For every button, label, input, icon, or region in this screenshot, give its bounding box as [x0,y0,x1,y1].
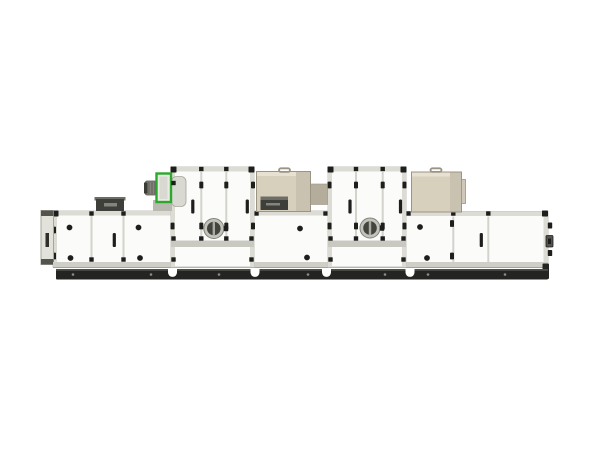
plinth-bolt [218,273,221,276]
door-knob [297,226,303,232]
plinth-bolt [384,273,387,276]
plinth-bolt [72,273,75,276]
door-handle [246,200,249,214]
slot-flange [261,197,289,201]
plinth-bolt [504,273,507,276]
hinge-tab [199,223,203,230]
porthole-latch [224,226,229,232]
air-handling-unit-illustration [0,0,600,450]
corner-cap [542,211,548,217]
sight-glass-porthole [204,219,224,239]
door-knob [424,255,430,261]
flange-slot [46,233,50,247]
seam-cap [401,236,405,240]
center-latch [546,236,553,248]
corner-cap [323,211,327,215]
seam-cap [381,167,385,171]
rotor-access-tower-right [328,167,407,268]
door-knob [304,255,310,261]
seam-cap [249,236,253,240]
door-knob [417,224,423,230]
cassette-side-shade [450,173,461,212]
hinge-tab [354,182,358,189]
seam-cap [89,257,93,261]
seam-cap [328,257,332,261]
door-handle [480,233,483,247]
edge-latch [548,250,552,256]
cassette-vent-slot [261,197,289,211]
hinge-tab [450,253,454,260]
hinge-tab [224,182,228,189]
hinge-tab [251,182,255,189]
seam-cap [249,257,253,261]
hinge-tab [171,223,175,230]
mid-frame-band [171,241,254,248]
base-sill [53,262,548,268]
corner-cap [401,167,407,173]
inlet-damper-flange [41,211,54,265]
discharge-section [406,211,553,268]
plinth-bolt [150,273,153,276]
seam-cap [199,236,203,240]
plinth-bolt [307,273,310,276]
hinge-tab [199,182,203,189]
seam-cap [89,211,93,215]
corner-cap [249,167,255,173]
top-frame-strip [171,167,254,172]
cassette-side-tab [462,180,466,204]
seam-cap [354,236,358,240]
door-knob [67,225,73,231]
tower-body [328,167,406,267]
center-latch-knob [548,239,551,245]
seam-cap [199,167,203,171]
corner-cap [328,167,334,173]
door-knob [136,225,142,231]
hinge-tab [328,182,332,189]
edge-latch [548,223,552,229]
seam-cap [328,236,332,240]
hinge-tab [354,223,358,230]
seam-cap [224,236,228,240]
cassette-side-shade [296,172,310,211]
door-handle [191,200,194,214]
door-knob [68,255,74,261]
sill-strip [53,262,548,268]
roof-vent [95,197,126,211]
seam-cap [401,257,405,261]
regeneration-section [254,211,328,267]
seam-cap [121,211,125,215]
hinge-tab [403,182,407,189]
cassette-duct [311,184,328,205]
rotor-cassette-box-right [412,168,466,212]
door-knob [137,255,143,261]
hinge-tab [450,220,454,227]
seam-cap [121,257,125,261]
door-handle [399,200,402,214]
seam-cap [354,167,358,171]
vent-grille [104,203,117,207]
seam-cap [171,236,175,240]
seam-cap [486,211,490,215]
seam-cap [381,236,385,240]
slot-grille [266,203,280,206]
flange-bottom-cap [41,259,54,265]
door-handle [348,200,351,214]
hinge-tab [328,223,332,230]
seam-cap [224,167,228,171]
mid-frame-band [328,241,406,248]
fan-frame-shading [160,177,168,200]
flange-top-cap [41,211,54,217]
hinge-tab [403,223,407,230]
fan-outlet-nub [171,181,175,185]
hinge-tab [381,182,385,189]
seam-cap [171,257,175,261]
top-frame-strip [53,211,171,216]
regen-section-body [254,211,328,267]
corner-cap [406,211,410,215]
product-photo-canvas [0,0,600,450]
plinth-highlight [56,269,548,271]
hinge-tab [251,223,255,230]
top-frame-strip [328,167,406,172]
door-handle [113,233,116,247]
sight-glass-porthole [360,218,380,238]
porthole-latch [380,225,385,231]
corner-cap [171,167,177,173]
motor-end-cap [144,183,148,194]
plinth-bolt [427,273,430,276]
